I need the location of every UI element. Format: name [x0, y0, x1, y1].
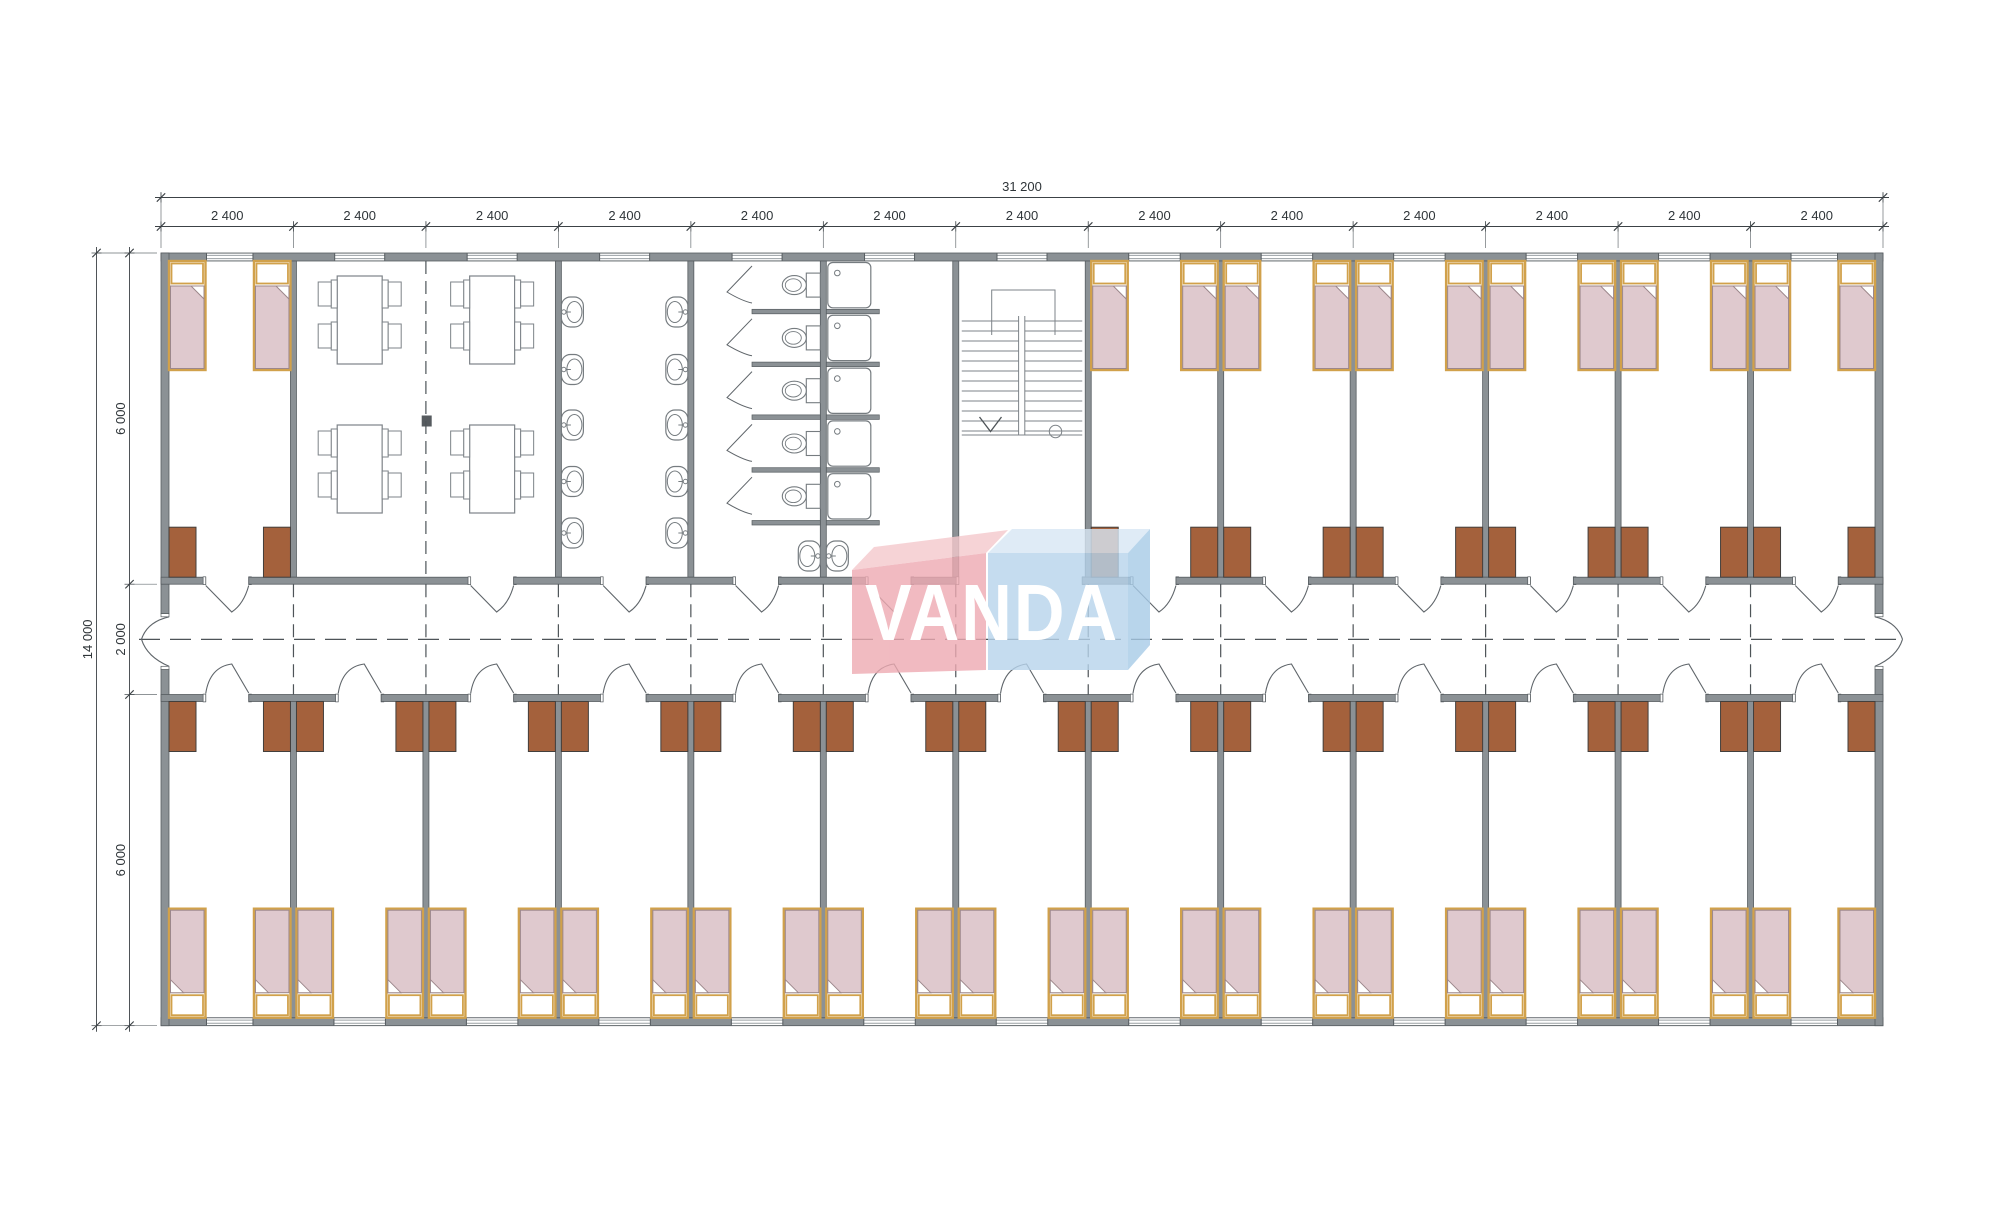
- chair-backrest: [382, 429, 388, 457]
- bed-blanket: [171, 286, 205, 369]
- bed: [1091, 909, 1128, 1018]
- wall-jamb-cap: [1395, 694, 1398, 702]
- wall-jamb-cap: [865, 694, 868, 702]
- toilet-tank: [806, 326, 820, 350]
- bed: [1049, 909, 1086, 1018]
- window: [1394, 1018, 1445, 1025]
- bed: [429, 909, 466, 1018]
- wardrobe: [169, 527, 196, 577]
- bed-pillow: [654, 995, 686, 1015]
- bed-pillow: [1714, 264, 1746, 284]
- chair-backrest: [515, 429, 521, 457]
- wardrobe: [1848, 527, 1875, 577]
- bed-pillow: [521, 995, 553, 1015]
- wardrobe: [661, 702, 688, 752]
- bed-blanket: [1225, 910, 1259, 993]
- bed: [1489, 261, 1526, 370]
- wardrobe: [1721, 702, 1748, 752]
- wardrobe: [1848, 702, 1875, 752]
- window: [1261, 254, 1312, 261]
- bed: [169, 261, 206, 370]
- shower-tray: [828, 368, 871, 413]
- corridor-wall: [514, 695, 603, 702]
- bed: [1839, 909, 1876, 1018]
- wardrobe: [1588, 702, 1615, 752]
- chair-seat: [318, 282, 331, 306]
- corridor-wall: [1176, 695, 1265, 702]
- dim-label-module-width: 2 400: [343, 208, 376, 223]
- corridor-wall: [1044, 695, 1133, 702]
- bed-blanket: [1448, 910, 1482, 993]
- corridor-wall: [646, 577, 735, 584]
- dim-label-module-width: 2 400: [476, 208, 509, 223]
- wardrobe: [1588, 527, 1615, 577]
- corridor-wall: [161, 695, 206, 702]
- toilet-tank: [806, 273, 820, 297]
- bed-pillow: [1359, 264, 1391, 284]
- wardrobe: [793, 702, 820, 752]
- bed: [169, 909, 206, 1018]
- logo-watermark: VANDA: [852, 529, 1150, 674]
- wall-jamb-cap: [203, 577, 206, 585]
- wall-jamb-cap: [1793, 694, 1796, 702]
- bed: [1621, 261, 1658, 370]
- wall-jamb-cap: [733, 577, 736, 585]
- wall-jamb-cap: [1660, 577, 1663, 585]
- wall-jamb-cap: [1263, 577, 1266, 585]
- bed-pillow: [1316, 995, 1348, 1015]
- wall-jamb-cap: [203, 694, 206, 702]
- window: [1791, 1018, 1837, 1025]
- corridor-wall: [1573, 577, 1662, 584]
- wall-jamb-cap: [1395, 577, 1398, 585]
- bed-pillow: [299, 995, 331, 1015]
- bed: [784, 909, 821, 1018]
- wardrobe: [1621, 527, 1648, 577]
- shower-tray: [828, 474, 871, 519]
- chair-backrest: [331, 280, 337, 308]
- window: [865, 254, 915, 261]
- chair-seat: [451, 282, 464, 306]
- shower-tray: [828, 315, 871, 360]
- wardrobe: [694, 702, 721, 752]
- bed: [1754, 261, 1791, 370]
- module-wall-top: [820, 261, 826, 577]
- chair-seat: [318, 431, 331, 455]
- bed: [959, 909, 996, 1018]
- bed-pillow: [961, 995, 993, 1015]
- bed-pillow: [1051, 995, 1083, 1015]
- dim-label-module-width: 2 400: [608, 208, 641, 223]
- toilet-tank: [806, 484, 820, 508]
- wash-basin: [666, 518, 688, 548]
- dim-label-top-bay: 6 000: [113, 402, 128, 435]
- bed-pillow: [919, 995, 951, 1015]
- wall-jamb-cap: [1793, 577, 1796, 585]
- bed-pillow: [829, 995, 861, 1015]
- bed-blanket: [1713, 286, 1747, 369]
- wardrobe: [1456, 702, 1483, 752]
- bed-blanket: [1580, 910, 1614, 993]
- bed-blanket: [1755, 286, 1789, 369]
- chair-seat: [388, 282, 401, 306]
- bed: [1314, 909, 1351, 1018]
- window: [732, 254, 782, 261]
- chair-backrest: [464, 429, 470, 457]
- window: [1129, 254, 1180, 261]
- window: [731, 1018, 782, 1025]
- shower-partition: [826, 415, 879, 420]
- column-marker: [422, 416, 432, 427]
- bed-blanket: [1623, 910, 1657, 993]
- bed-pillow: [1449, 264, 1481, 284]
- dim-label-module-width: 2 400: [741, 208, 774, 223]
- wall-jamb-cap: [1875, 614, 1883, 617]
- bed: [1579, 261, 1616, 370]
- toilet-partition: [752, 521, 820, 526]
- wardrobe: [826, 702, 853, 752]
- dim-label-bottom-bay: 6 000: [113, 844, 128, 877]
- bed-pillow: [1316, 264, 1348, 284]
- dim-label-module-width: 2 400: [1403, 208, 1436, 223]
- wardrobe: [528, 702, 555, 752]
- chair-backrest: [464, 280, 470, 308]
- wardrobe: [1754, 527, 1781, 577]
- bed: [1314, 261, 1351, 370]
- bed: [916, 909, 953, 1018]
- window: [599, 1018, 650, 1025]
- bed-pillow: [1841, 264, 1873, 284]
- corridor-wall: [779, 695, 868, 702]
- wash-basin: [666, 297, 688, 327]
- shower-partition: [826, 362, 879, 367]
- chair-seat: [318, 324, 331, 348]
- wash-basin: [561, 297, 583, 327]
- window: [864, 1018, 915, 1025]
- chair-backrest: [515, 280, 521, 308]
- bed: [1181, 909, 1218, 1018]
- wall-jamb-cap: [601, 577, 604, 585]
- wardrobe: [1621, 702, 1648, 752]
- bed-pillow: [172, 264, 204, 284]
- wall-jamb-cap: [1130, 694, 1133, 702]
- window: [1261, 1018, 1312, 1025]
- wardrobe: [1323, 702, 1350, 752]
- bed: [386, 909, 423, 1018]
- bed-pillow: [564, 995, 596, 1015]
- wardrobe: [1356, 702, 1383, 752]
- chair-seat: [451, 431, 464, 455]
- bed-pillow: [1581, 264, 1613, 284]
- chair-seat: [521, 431, 534, 455]
- corridor-wall: [249, 695, 338, 702]
- dining-table: [470, 425, 515, 513]
- bed: [1446, 909, 1483, 1018]
- bed-pillow: [1624, 264, 1656, 284]
- dim-label-corridor: 2 000: [113, 623, 128, 656]
- dim-label-module-width: 2 400: [1800, 208, 1833, 223]
- wardrobe: [1058, 702, 1085, 752]
- bed-blanket: [1050, 910, 1084, 993]
- window: [467, 254, 517, 261]
- bed: [561, 909, 598, 1018]
- dim-label-module-width: 2 400: [1138, 208, 1171, 223]
- bed: [254, 909, 291, 1018]
- chair-backrest: [331, 429, 337, 457]
- wardrobe: [396, 702, 423, 752]
- bed-blanket: [1755, 910, 1789, 993]
- bed-blanket: [1093, 286, 1127, 369]
- shower-partition: [826, 309, 879, 314]
- chair-seat: [388, 431, 401, 455]
- wall-jamb-cap: [1528, 577, 1531, 585]
- chair-seat: [318, 473, 331, 497]
- bed-blanket: [1840, 286, 1874, 369]
- wall-jamb-cap: [1528, 694, 1531, 702]
- wardrobe: [1323, 527, 1350, 577]
- chair-backrest: [464, 471, 470, 499]
- window: [334, 1018, 385, 1025]
- wardrobe: [1754, 702, 1781, 752]
- wash-basin: [666, 467, 688, 497]
- dining-table: [337, 425, 382, 513]
- bed: [1356, 909, 1393, 1018]
- corridor-wall: [514, 577, 603, 584]
- bed: [1356, 261, 1393, 370]
- bed-pillow: [1624, 995, 1656, 1015]
- bed-pillow: [1491, 264, 1523, 284]
- bed: [1181, 261, 1218, 370]
- wardrobe: [169, 702, 196, 752]
- wardrobe: [1091, 702, 1118, 752]
- window: [1659, 254, 1710, 261]
- shower-partition: [826, 468, 879, 473]
- corridor-wall: [381, 695, 470, 702]
- bed-pillow: [1756, 995, 1788, 1015]
- bed: [1579, 909, 1616, 1018]
- bed-blanket: [918, 910, 952, 993]
- bed-blanket: [1358, 910, 1392, 993]
- wardrobe: [429, 702, 456, 752]
- bed-blanket: [1580, 286, 1614, 369]
- bed-pillow: [1184, 995, 1216, 1015]
- window: [207, 254, 253, 261]
- bed: [254, 261, 291, 370]
- window: [1791, 254, 1837, 261]
- window: [207, 1018, 253, 1025]
- dining-table: [337, 276, 382, 364]
- chair-seat: [521, 324, 534, 348]
- bed-pillow: [1226, 995, 1258, 1015]
- shower-partition: [826, 521, 879, 526]
- bed-blanket: [1358, 286, 1392, 369]
- chair-backrest: [382, 280, 388, 308]
- bed-blanket: [1490, 286, 1524, 369]
- bed-blanket: [255, 286, 289, 369]
- wall-jamb-cap: [601, 694, 604, 702]
- bed: [296, 909, 333, 1018]
- module-wall-top: [688, 261, 694, 577]
- bed-blanket: [1183, 286, 1217, 369]
- bed-pillow: [256, 995, 288, 1015]
- dim-label-module-width: 2 400: [211, 208, 244, 223]
- bed-pillow: [1714, 995, 1746, 1015]
- wall-jamb-cap: [1660, 694, 1663, 702]
- corridor-wall: [1176, 577, 1265, 584]
- bed-blanket: [1315, 910, 1349, 993]
- window: [1394, 254, 1445, 261]
- bed: [1754, 909, 1791, 1018]
- bed: [694, 909, 731, 1018]
- bed-pillow: [1359, 995, 1391, 1015]
- corridor-wall: [1308, 695, 1397, 702]
- wall-jamb-cap: [733, 694, 736, 702]
- window: [1129, 1018, 1180, 1025]
- corridor-wall: [1838, 695, 1883, 702]
- wardrobe: [1721, 527, 1748, 577]
- logo-block-blue-bevel: [988, 529, 1150, 553]
- floor-plan: 31 2002 4002 4002 4002 4002 4002 4002 40…: [0, 0, 2000, 1200]
- bed: [1224, 909, 1261, 1018]
- bed-blanket: [520, 910, 554, 993]
- floor-plan-svg: 31 2002 4002 4002 4002 4002 4002 4002 40…: [0, 0, 2000, 1200]
- bed-blanket: [960, 910, 994, 993]
- corridor-wall: [1308, 577, 1397, 584]
- bed-pillow: [696, 995, 728, 1015]
- window: [996, 1018, 1047, 1025]
- bed-blanket: [1225, 286, 1259, 369]
- bed: [1711, 909, 1748, 1018]
- bed-blanket: [1093, 910, 1127, 993]
- bed-pillow: [256, 264, 288, 284]
- bed-blanket: [785, 910, 819, 993]
- wardrobe: [561, 702, 588, 752]
- toilet-tank: [806, 432, 820, 456]
- wash-basin: [561, 467, 583, 497]
- chair-backrest: [382, 322, 388, 350]
- wash-basin: [666, 355, 688, 385]
- wardrobe: [1191, 527, 1218, 577]
- wardrobe: [263, 702, 290, 752]
- shower-tray: [828, 263, 871, 308]
- logo-text: VANDA: [865, 568, 1119, 657]
- bed-blanket: [255, 910, 289, 993]
- corridor-wall: [249, 577, 471, 584]
- wall-jamb-cap: [998, 694, 1001, 702]
- bed: [1446, 261, 1483, 370]
- chair-seat: [451, 324, 464, 348]
- bed: [1839, 261, 1876, 370]
- toilet-partition: [752, 309, 820, 314]
- bed: [1224, 261, 1261, 370]
- bed: [1091, 261, 1128, 370]
- window: [335, 254, 385, 261]
- corridor-wall: [646, 695, 735, 702]
- chair-seat: [521, 473, 534, 497]
- bed-pillow: [1756, 264, 1788, 284]
- wash-basin: [826, 541, 848, 571]
- wardrobe: [1191, 702, 1218, 752]
- corridor-wall: [1706, 695, 1795, 702]
- corridor-wall: [1441, 577, 1530, 584]
- bed-pillow: [172, 995, 204, 1015]
- chair-backrest: [382, 471, 388, 499]
- wall-jamb-cap: [468, 577, 471, 585]
- corridor-wall: [1441, 695, 1530, 702]
- corridor-wall: [161, 577, 206, 584]
- window: [1526, 254, 1577, 261]
- toilet-tank: [806, 379, 820, 403]
- chair-seat: [451, 473, 464, 497]
- corridor-wall: [1706, 577, 1795, 584]
- bed-pillow: [389, 995, 421, 1015]
- module-wall-top: [953, 261, 959, 577]
- chair-seat: [521, 282, 534, 306]
- wash-basin: [561, 518, 583, 548]
- bed-pillow: [431, 995, 463, 1015]
- dim-label-module-width: 2 400: [1006, 208, 1039, 223]
- bed-blanket: [1448, 286, 1482, 369]
- wash-basin: [561, 355, 583, 385]
- window: [600, 254, 650, 261]
- wardrobe: [1356, 527, 1383, 577]
- window: [466, 1018, 517, 1025]
- toilet-partition: [752, 415, 820, 420]
- bed-blanket: [1183, 910, 1217, 993]
- toilet-partition: [752, 468, 820, 473]
- bed-blanket: [1713, 910, 1747, 993]
- chair-backrest: [515, 471, 521, 499]
- bed-blanket: [653, 910, 687, 993]
- corridor-wall: [1573, 695, 1662, 702]
- bed-pillow: [1581, 995, 1613, 1015]
- bed: [1621, 909, 1658, 1018]
- wash-basin: [798, 541, 820, 571]
- dim-label-overall-depth: 14 000: [80, 619, 95, 659]
- dim-label-module-width: 2 400: [1668, 208, 1701, 223]
- bed-blanket: [828, 910, 862, 993]
- bed-pillow: [1449, 995, 1481, 1015]
- shower-tray: [828, 421, 871, 466]
- bed-blanket: [563, 910, 597, 993]
- bed-pillow: [1491, 995, 1523, 1015]
- bed-blanket: [1315, 286, 1349, 369]
- bed: [651, 909, 688, 1018]
- bed-blanket: [1490, 910, 1524, 993]
- dim-label-overall-width: 31 200: [1002, 179, 1042, 194]
- bed-pillow: [1094, 264, 1126, 284]
- wash-basin: [666, 410, 688, 440]
- bed-pillow: [1841, 995, 1873, 1015]
- wall-jamb-cap: [336, 694, 339, 702]
- bed-blanket: [695, 910, 729, 993]
- wall-jamb-cap: [1875, 666, 1883, 669]
- bed-pillow: [786, 995, 818, 1015]
- module-wall-top: [555, 261, 561, 577]
- wall-jamb-cap: [468, 694, 471, 702]
- chair-seat: [388, 473, 401, 497]
- wardrobe: [926, 702, 953, 752]
- window: [997, 254, 1047, 261]
- wardrobe: [1224, 527, 1251, 577]
- window: [1526, 1018, 1577, 1025]
- chair-backrest: [331, 322, 337, 350]
- wardrobe: [1456, 527, 1483, 577]
- bed-blanket: [1840, 910, 1874, 993]
- wall-jamb-cap: [161, 666, 169, 669]
- bed: [519, 909, 556, 1018]
- bed: [1489, 909, 1526, 1018]
